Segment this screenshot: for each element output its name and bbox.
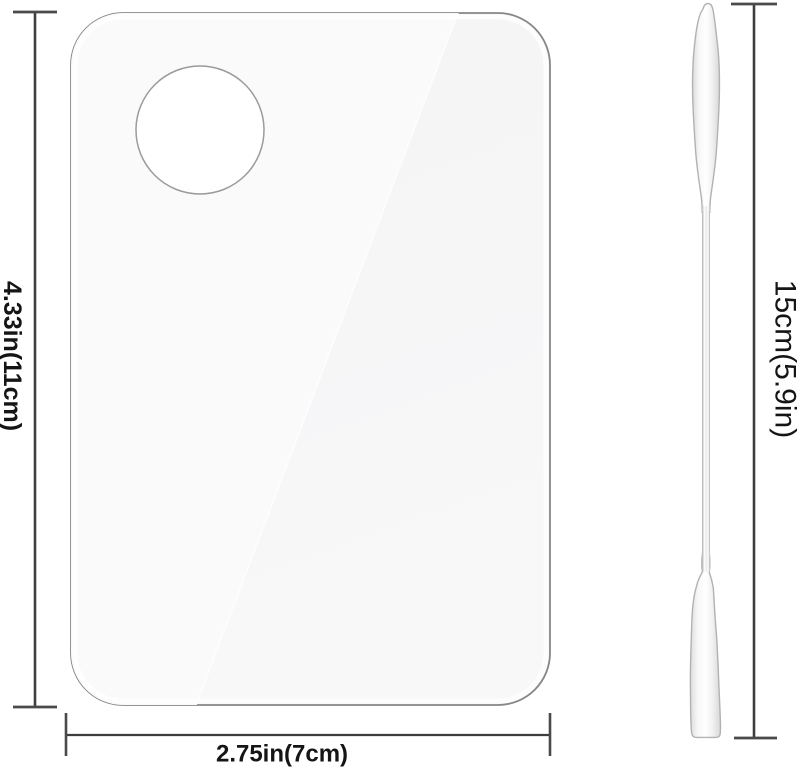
svg-text:2.75in(7cm): 2.75in(7cm): [216, 741, 348, 768]
svg-text:4.33in(11cm): 4.33in(11cm): [0, 281, 26, 431]
svg-text:15cm(5.9in): 15cm(5.9in): [769, 280, 802, 438]
